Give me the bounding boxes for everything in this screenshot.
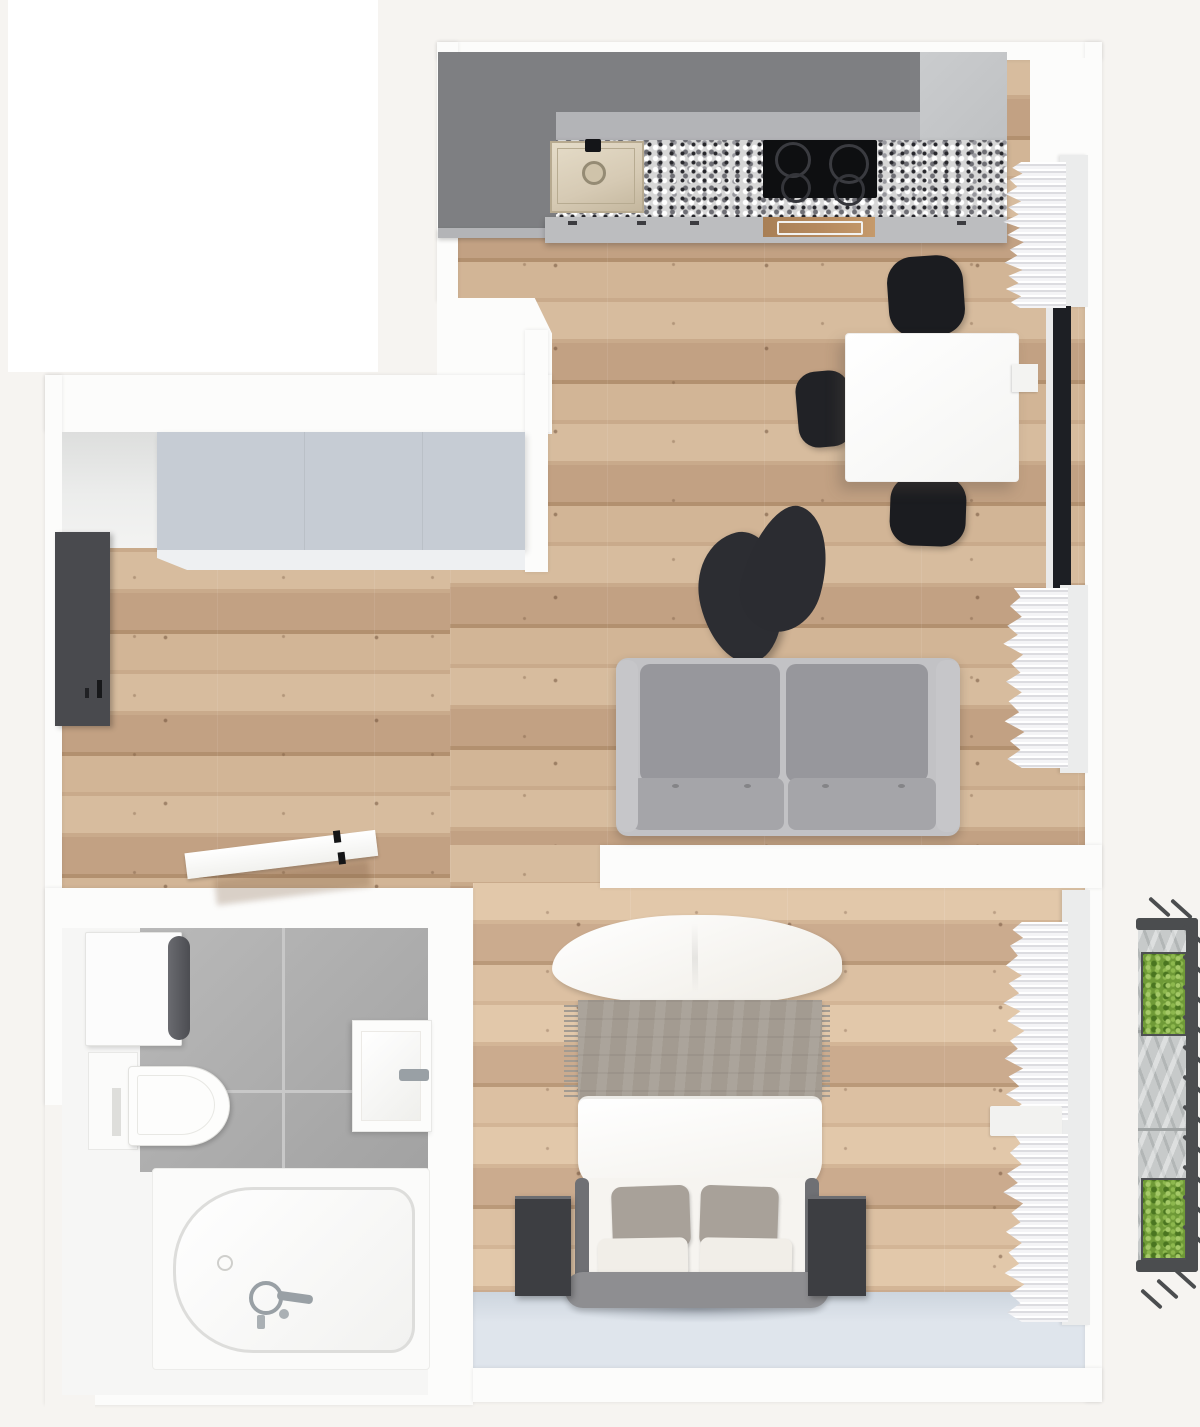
burner	[781, 173, 811, 203]
seat-dimple	[898, 784, 905, 788]
balcony-rail-bottom	[1136, 1260, 1198, 1272]
balcony-divider	[1138, 1128, 1186, 1131]
doorway-floor	[450, 845, 600, 888]
kitchen-corner-cabinet	[438, 52, 556, 228]
railing-bar	[1156, 1278, 1179, 1299]
cabinet-handle	[957, 221, 966, 225]
sofa-back-cushion-left	[640, 664, 780, 782]
railing-bar	[1140, 1288, 1163, 1309]
cabinet-handle	[637, 221, 646, 225]
pillow-crease	[692, 923, 699, 993]
washbasin-faucet	[399, 1069, 429, 1081]
dining-chair-top	[885, 253, 966, 338]
wall-kitchen-hall	[525, 330, 548, 572]
neighbor-unit-block	[8, 0, 378, 372]
toilet-flush-plate	[112, 1088, 121, 1136]
wall-living-bedroom	[600, 845, 1102, 888]
floor-plan-render	[0, 0, 1200, 1427]
door-handle	[338, 852, 346, 865]
sink-drain	[582, 161, 606, 185]
sink-faucet	[585, 139, 601, 152]
bed-pillow	[552, 913, 843, 1006]
cabinet-handle	[568, 221, 577, 225]
dining-chair-bottom	[889, 475, 967, 548]
oven-front	[763, 217, 875, 237]
railing-bar	[1170, 898, 1193, 919]
curtain-ledge	[990, 1106, 1062, 1136]
washbasin	[352, 1020, 432, 1132]
window-glass	[1053, 306, 1071, 588]
wardrobe-front	[157, 550, 525, 570]
balcony-planter-top	[1141, 952, 1187, 1036]
kitchen-corner-cabinet-front	[438, 228, 556, 238]
window-sill	[1012, 364, 1038, 392]
toilet-seat-ring	[137, 1075, 215, 1135]
balcony-rail-right	[1186, 918, 1198, 1272]
hall-wall-shadow	[62, 432, 157, 548]
kitchen-tall-cabinet	[920, 52, 1007, 140]
balcony-planter-bottom	[1141, 1178, 1187, 1260]
nightstand-right	[808, 1196, 866, 1296]
sofa-back-cushion-right	[786, 664, 928, 782]
seat-dimple	[672, 784, 679, 788]
balcony	[1136, 905, 1200, 1315]
bathtub-drain	[217, 1255, 233, 1271]
bathtub	[152, 1168, 430, 1370]
bed-duvet	[578, 1096, 822, 1191]
bed-blanket	[578, 1000, 822, 1100]
lounge-chair	[698, 505, 833, 665]
railing-bar	[1148, 896, 1171, 917]
sofa-arm-right	[936, 660, 960, 832]
oven-handle	[777, 221, 863, 235]
cooktop	[763, 140, 877, 198]
entry-door-handle	[85, 688, 89, 698]
wall-hall-top	[45, 375, 552, 432]
kitchen-sink	[550, 141, 644, 213]
entry-door-handle	[97, 680, 102, 698]
washing-machine-door	[168, 936, 190, 1040]
seat-dimple	[744, 784, 751, 788]
bathtub-inner	[173, 1187, 415, 1353]
toilet-bowl	[128, 1066, 230, 1146]
wardrobe-seam	[422, 432, 423, 550]
tile-grout-vertical	[282, 928, 285, 1172]
nightstand-left	[515, 1196, 571, 1296]
bathtub-handle	[257, 1315, 265, 1329]
cabinet-handle	[690, 221, 699, 225]
blanket-fringe-left	[564, 1003, 578, 1097]
sofa-seat-cushion-right	[788, 778, 936, 830]
bed-footboard	[565, 1272, 829, 1308]
wardrobe	[157, 432, 525, 550]
sofa-seat-cushion-left	[632, 778, 784, 830]
wall-bedroom-bottom	[473, 1368, 1102, 1402]
seat-dimple	[822, 784, 829, 788]
burner	[833, 174, 865, 206]
door-handle	[333, 830, 341, 843]
entry-door-panel	[55, 532, 110, 726]
kitchen-cabinet-band	[556, 112, 920, 140]
bathtub-handle	[279, 1309, 289, 1319]
wardrobe-seam	[304, 432, 305, 550]
bed	[552, 915, 842, 1315]
sofa	[616, 658, 960, 836]
dining-table	[845, 333, 1019, 482]
sofa-arm-left	[616, 660, 638, 832]
